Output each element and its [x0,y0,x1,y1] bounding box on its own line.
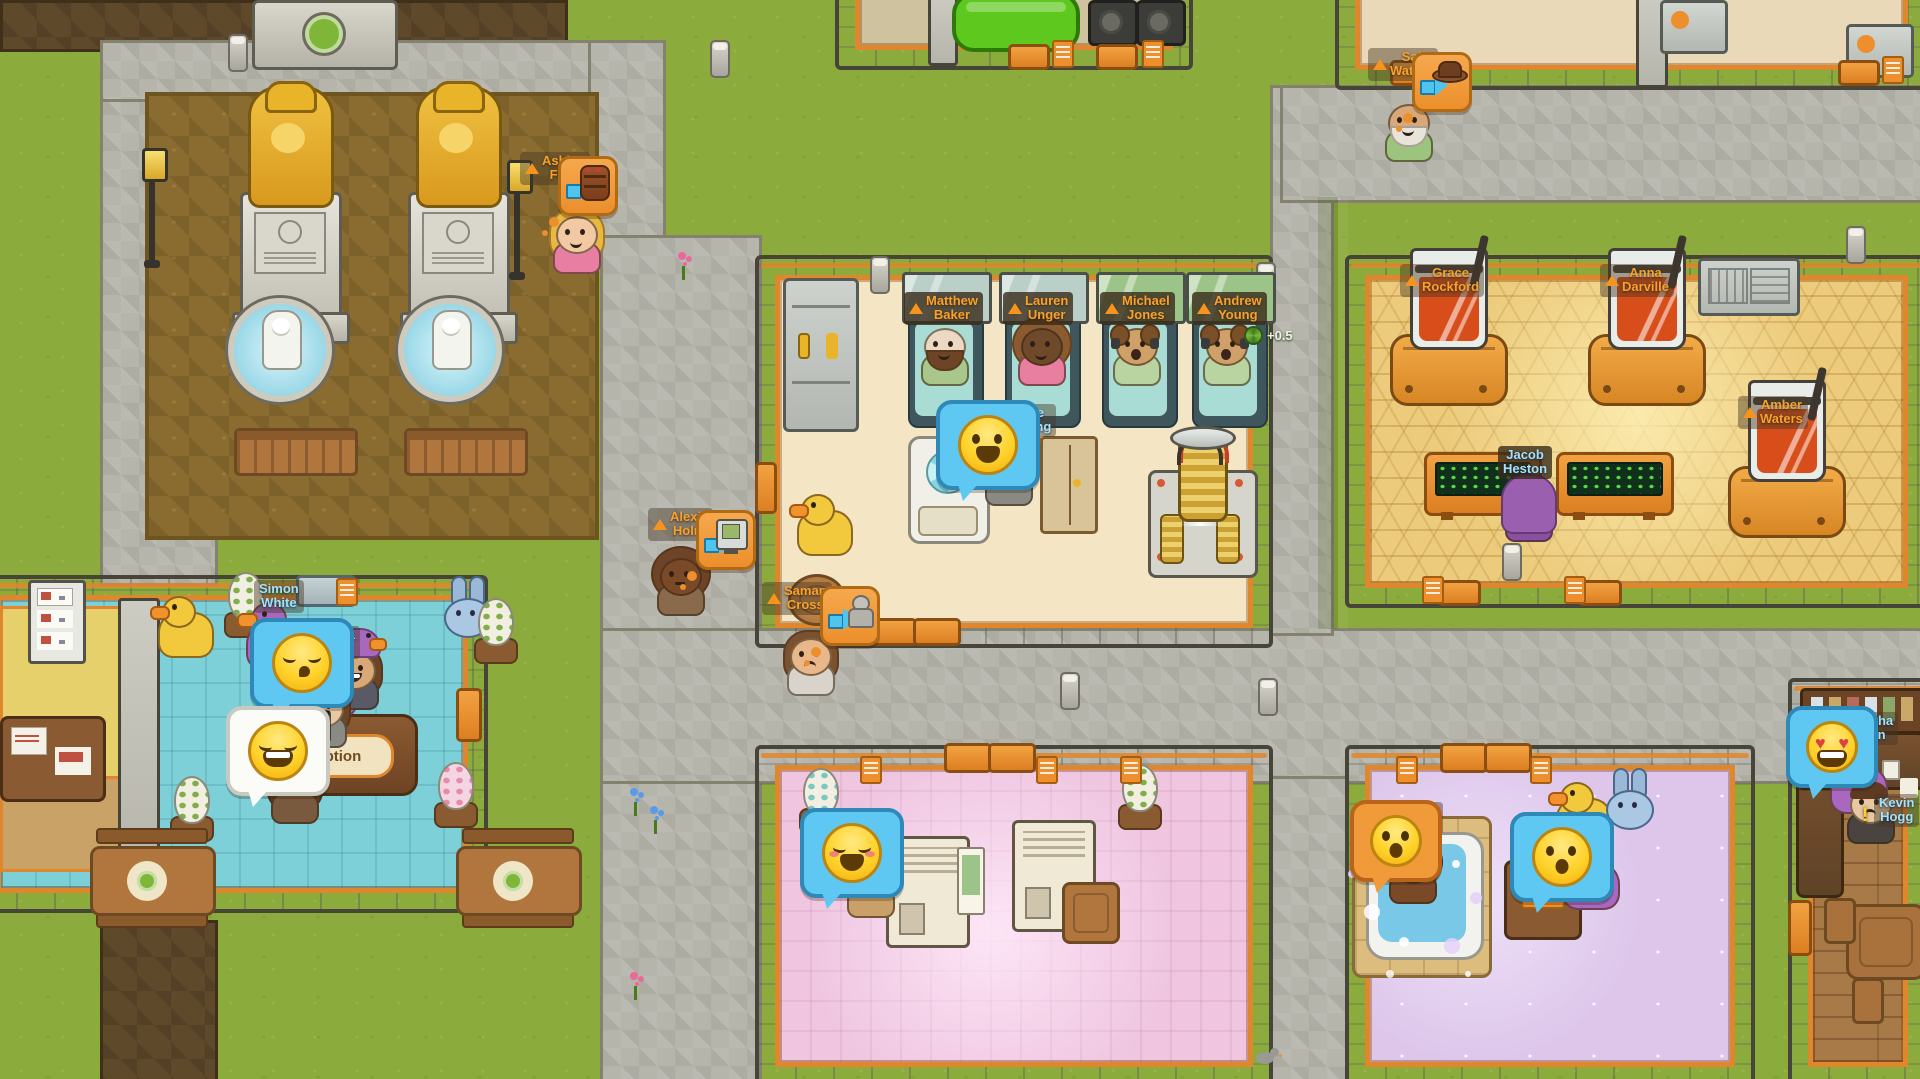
prop-deskpapers[interactable] [0,716,106,802]
prop-turntable[interactable] [1088,0,1138,46]
prop-monument[interactable] [252,0,398,70]
emoji-kiss [272,633,332,693]
prop-bench[interactable] [234,428,358,476]
prop-flower[interactable] [628,972,644,1000]
name-label-michael-jones: Michael Jones [1100,292,1175,325]
prop-bollard[interactable] [710,40,730,78]
door[interactable] [1008,44,1050,70]
name-label-andrew-young: Andrew Young [1192,292,1267,325]
speech-bubble [1350,800,1442,882]
door[interactable] [913,618,961,646]
prop-bollard[interactable] [228,34,248,72]
mood-swirl-icon [1244,326,1263,345]
door-sign[interactable] [1564,576,1586,604]
speech-bubble: ♥♥ [1786,706,1878,788]
prop-chair[interactable] [1852,978,1884,1024]
door-sign[interactable] [860,756,882,784]
prop-bollard[interactable] [1060,672,1080,710]
character-lauren-unger[interactable] [1013,318,1067,386]
prop-rack[interactable] [28,580,86,664]
prop-bollard[interactable] [870,256,890,294]
door-sign[interactable] [1396,756,1418,784]
task-icon-statue [820,586,880,646]
name-label-kevin-hogg: Kevin Hogg [1874,794,1919,827]
name-label-amber-waters: Amber Waters [1738,396,1808,429]
prop-picnic[interactable] [450,828,582,928]
character-ashley-fritz[interactable] [548,206,602,274]
emoji-wow [1532,827,1592,887]
prop-picnic[interactable] [84,828,216,928]
character-michael-jones[interactable] [1108,318,1162,386]
speech-bubble [1510,812,1614,902]
prop-bird[interactable] [1256,1046,1282,1066]
emoji-smile [958,415,1018,475]
prop-steelbox[interactable] [1660,0,1728,54]
door[interactable] [1484,743,1532,773]
name-label-grace-rockford: Grace Rockford [1400,264,1484,297]
ground-stripes [1318,197,1348,629]
character-jacob-heston[interactable] [1500,474,1554,542]
door[interactable] [1440,743,1488,773]
prop-sidetable[interactable] [1062,882,1120,944]
door-sign[interactable] [1120,756,1142,784]
prop-duck[interactable] [158,596,210,658]
mood-indicator: +0.5 [1244,326,1293,345]
speech-bubble [226,706,330,796]
door[interactable] [456,688,482,742]
prop-fountain[interactable] [398,298,502,402]
prop-duck[interactable] [797,494,849,556]
prop-counter[interactable] [1556,452,1674,516]
door-sign[interactable] [1882,56,1904,84]
prop-chair[interactable] [1824,898,1856,944]
ground-path [1280,85,1920,203]
emoji-wow [1370,815,1422,867]
character-matthew-baker[interactable] [916,318,970,386]
alert-exclamation: ! [1862,806,1868,825]
speech-bubble [800,808,904,898]
emoji-blush [822,823,882,883]
name-label-simon-white: Simon White [254,580,304,613]
prop-flower[interactable] [628,788,644,816]
prop-flower[interactable] [676,252,692,280]
prop-locker[interactable] [783,278,859,432]
prop-bollard[interactable] [1258,678,1278,716]
prop-eggstand[interactable] [428,762,480,828]
door[interactable] [944,743,992,773]
door[interactable] [1096,44,1138,70]
door[interactable] [988,743,1036,773]
prop-cabinet[interactable] [1040,436,1098,534]
door-sign[interactable] [1052,40,1074,68]
door-sign[interactable] [1142,40,1164,68]
prop-lamp[interactable] [140,148,164,268]
door[interactable] [755,462,777,514]
prop-bench[interactable] [404,428,528,476]
door[interactable] [1838,60,1880,86]
prop-steeltable[interactable] [1698,258,1800,316]
emoji-grin [248,721,308,781]
door[interactable] [1788,900,1812,956]
speech-bubble [250,618,354,708]
prop-eggstand[interactable] [468,598,520,664]
name-label-anna-darville: Anna Darville [1600,264,1674,297]
prop-flower[interactable] [648,806,664,834]
prop-bollard[interactable] [1502,543,1522,581]
ground-dirt [100,920,218,1079]
prop-woodtable[interactable] [1846,904,1920,980]
ground-path [1270,776,1348,1079]
mood-value: +0.5 [1267,328,1293,343]
door-sign[interactable] [1530,756,1552,784]
speech-bubble [936,400,1040,490]
task-icon-computer [696,510,756,570]
door-sign[interactable] [1422,576,1444,604]
task-icon-barrel [558,156,618,216]
prop-bollard[interactable] [1846,226,1866,264]
task-icon-hat [1412,52,1472,112]
prop-fountain[interactable] [228,298,332,402]
prop-tesla[interactable] [1148,436,1252,572]
game-viewport[interactable]: ReceptionAshley FritzSal WatersMatthew B… [0,0,1920,1079]
name-label-matthew-baker: Matthew Baker [904,292,983,325]
door-sign[interactable] [336,578,358,606]
door-sign[interactable] [1036,756,1058,784]
name-label-lauren-unger: Lauren Unger [1003,292,1073,325]
emoji-love: ♥♥ [1806,721,1858,773]
name-label-jacob-heston: Jacob Heston [1498,446,1552,479]
